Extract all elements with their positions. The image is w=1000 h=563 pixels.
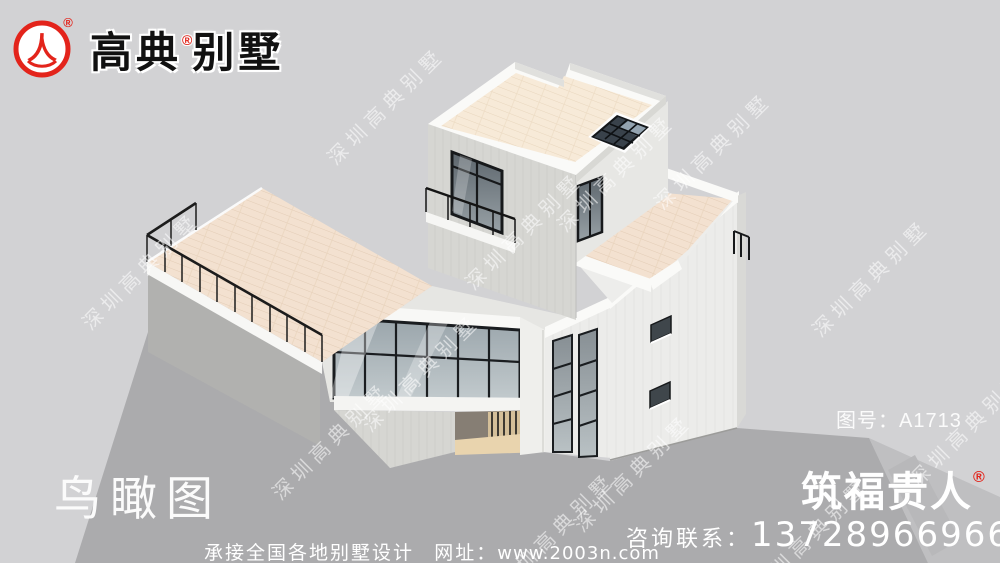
brand-name: 高典®别墅 <box>90 8 284 86</box>
logo-registered-icon: ® <box>63 15 73 30</box>
website-label: 网址： <box>434 543 497 563</box>
registered-mark: ® <box>182 32 192 48</box>
registered-mark: ® <box>973 469 985 486</box>
service-text: 承接全国各地别墅设计 <box>204 543 414 563</box>
brand-logo: 人 ® 高典®别墅 <box>12 8 284 86</box>
contact-phone: 13728966966 <box>751 515 1000 555</box>
view-title: 鸟瞰图 <box>54 460 222 529</box>
brand-logo-icon: 人 ® <box>12 15 76 79</box>
poster-canvas: 深圳高典别墅深圳高典别墅深圳高典别墅深圳高典别墅深圳高典别墅深圳高典别墅深圳高典… <box>0 0 1000 563</box>
logo-glyph: 人 <box>27 33 57 66</box>
bottom-brand: 筑福贵人® <box>801 458 985 518</box>
terrace-door <box>578 177 602 241</box>
contact-line: 咨询联系： 13728966966 <box>626 515 1000 555</box>
contact-label: 咨询联系： <box>626 521 751 553</box>
drawing-number: 图号：A1713 <box>836 404 962 433</box>
service-line: 承接全国各地别墅设计 网址：www.2003n.com <box>204 538 660 563</box>
